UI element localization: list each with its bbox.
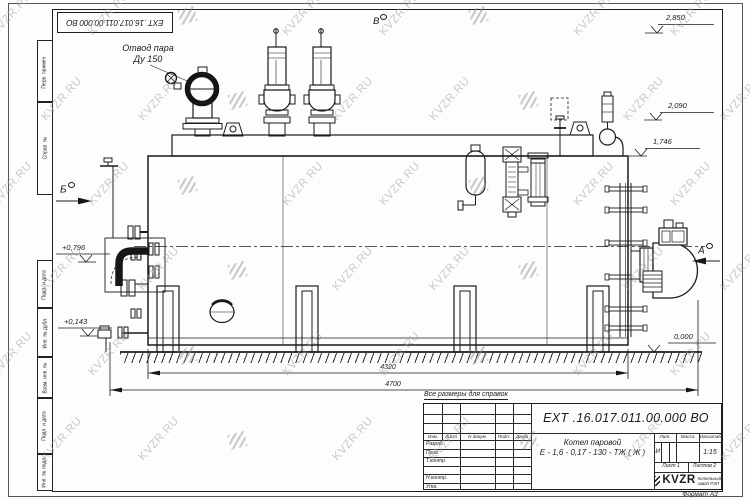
margin-label: Справ. № <box>42 137 48 160</box>
tb-line <box>460 404 461 489</box>
tb-row-utv: Утв. <box>426 485 437 490</box>
burner <box>631 220 697 298</box>
tb-header-list: Лист <box>442 435 460 440</box>
tb-row-nkontr: Н.контр. <box>426 476 447 481</box>
reference-note: Все размеры для справок <box>424 391 508 400</box>
tb-line <box>661 442 662 462</box>
margin-cell-podp-data-2: Подп. и дата <box>37 397 53 455</box>
view-letter: Б <box>60 184 67 195</box>
tb-line <box>424 414 531 415</box>
ground-hatch <box>120 353 702 363</box>
rear-flange <box>620 183 631 337</box>
safety-valve <box>304 28 340 136</box>
support-leg <box>587 286 609 352</box>
steam-outlet-label: Отвод пара Ду 150 <box>112 44 184 64</box>
tb-row-prov: Пров. <box>426 451 439 456</box>
level-2090: 2,090 <box>668 102 687 110</box>
manhole <box>210 300 234 322</box>
tb-line <box>495 404 496 489</box>
tb-header-data: Дата <box>513 435 531 440</box>
tb-mass-label: Масса <box>676 435 699 440</box>
margin-label: Инв. № дубл. <box>42 317 48 348</box>
margin-cell-sprav-no: Справ. № <box>37 101 53 195</box>
tb-line <box>424 483 531 484</box>
level-0000: 0,000 <box>674 333 693 341</box>
tb-organization: KVZR Котельный завод РЭП <box>654 472 721 489</box>
margin-cell-podp-data-1: Подп. и дата <box>37 260 53 309</box>
support-leg <box>157 286 179 352</box>
flange-stud <box>605 325 647 331</box>
margin-label: Подп. и дата <box>42 270 48 299</box>
margin-label: Взам. инв. № <box>42 362 48 393</box>
tb-header-podp: Подп. <box>495 435 513 440</box>
tb-line <box>513 404 514 489</box>
support-leg <box>454 286 476 352</box>
water-level-gauge <box>503 147 548 217</box>
view-label-b: Б <box>60 182 75 195</box>
flange-stud <box>605 207 647 213</box>
tb-product-name-line2: Е - 1,6 - 0,17 - 130 - ТЖ ( Ж ) <box>540 448 645 459</box>
tb-lit-value: И <box>654 442 661 462</box>
view-arrow-b <box>56 198 92 205</box>
view-letter: А <box>698 245 705 256</box>
support-leg <box>296 286 318 352</box>
dim-4700: 4700 <box>368 381 418 388</box>
steam-outlet-line2: Ду 150 <box>112 55 184 64</box>
drawing-sheet: Перв. примен. Справ. № Подп. и дата Инв.… <box>0 0 750 500</box>
dim-4320: 4320 <box>363 364 413 371</box>
view-label-circle <box>706 243 713 249</box>
boiler-shell <box>148 156 628 345</box>
format-label: Формат А3 <box>660 492 740 499</box>
lifting-lug <box>223 122 590 136</box>
tb-product-name: Котел паровой Е - 1,6 - 0,17 - 130 - ТЖ … <box>531 433 654 463</box>
level-0796: +0,796 <box>62 244 85 252</box>
kvzr-logo-icon <box>654 476 660 486</box>
steam-outlet-line1: Отвод пара <box>112 44 184 53</box>
margin-cell-inv-podl: Инв. № подл. <box>37 453 53 491</box>
tb-header-ndoc: N докум. <box>460 435 495 440</box>
view-label-v: В <box>373 14 387 27</box>
margin-cell-perv-primen: Перв. примен. <box>37 40 53 103</box>
margin-label: Перв. примен. <box>42 55 48 88</box>
tb-line <box>424 466 531 467</box>
flange-stud <box>605 306 647 312</box>
tb-row-tkontr: Т.контр. <box>426 459 446 464</box>
tb-doc-number: ЕХТ .16.017.011.00.000 ВО <box>531 404 721 433</box>
tb-product-name-line1: Котел паровой <box>564 438 621 449</box>
tb-sheets: Листов 2 <box>688 462 721 472</box>
tb-line <box>669 442 670 462</box>
level-marks <box>56 25 716 353</box>
kvzr-logo-sub2: завод РЭП <box>698 481 721 486</box>
safety-valve <box>259 28 295 136</box>
steam-outlet-valve <box>150 65 222 136</box>
margin-cell-inv-dubl: Инв. № дубл. <box>37 307 53 358</box>
view-label-a: А <box>698 243 713 256</box>
level-2850: 2,850 <box>666 14 685 22</box>
tb-scale-label: Масштаб <box>699 435 721 440</box>
margin-cell-vzam-inv: Взам. инв. № <box>37 356 53 399</box>
tb-header-izm: Изм. <box>424 435 442 440</box>
tb-sheet: Лист 1 <box>654 462 688 472</box>
margin-label: Подп. и дата <box>42 411 48 440</box>
kvzr-logo-text: KVZR <box>662 475 695 487</box>
tb-scale-value: 1:15 <box>699 442 721 462</box>
level-1746: 1,746 <box>653 138 672 146</box>
view-label-circle <box>68 182 75 188</box>
tb-row-razrab: Разраб. <box>426 442 444 447</box>
doc-number-inverted: ЕХТ .16.017.011.00.000 ВО <box>57 12 173 33</box>
view-label-circle <box>380 14 387 20</box>
flange-stud <box>605 186 647 192</box>
tb-line <box>424 449 531 450</box>
tb-lit-label: Лит. <box>654 435 676 440</box>
sample-cooler-vessel <box>458 145 485 210</box>
level-0143: +0,143 <box>64 318 87 326</box>
title-block: Изм. Лист N докум. Подп. Дата Разраб. Пр… <box>423 403 722 490</box>
flange-stud <box>605 240 647 246</box>
margin-label: Инв. № подл. <box>42 456 48 487</box>
view-letter: В <box>373 16 379 27</box>
tb-line <box>424 423 531 424</box>
